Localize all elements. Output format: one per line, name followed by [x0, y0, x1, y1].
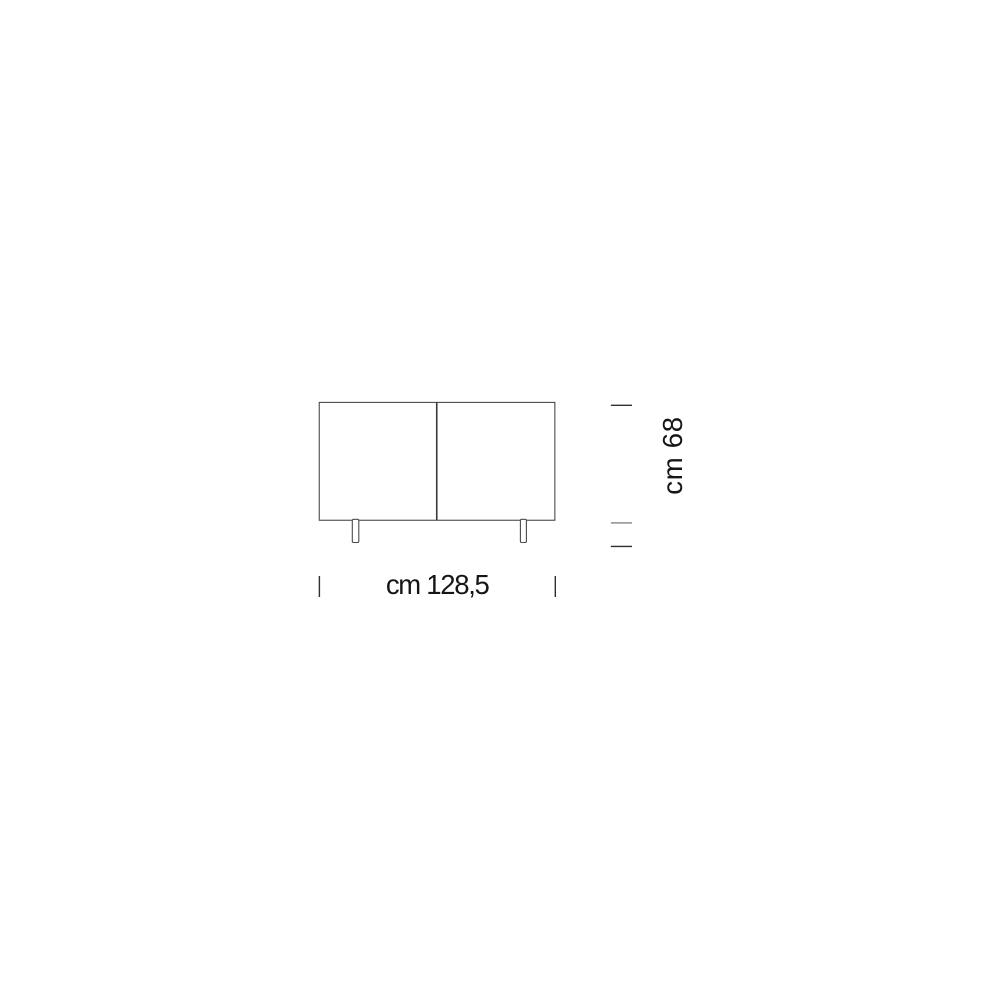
- svg-text:cm 68: cm 68: [657, 416, 688, 494]
- svg-text:cm 128,5: cm 128,5: [386, 569, 490, 600]
